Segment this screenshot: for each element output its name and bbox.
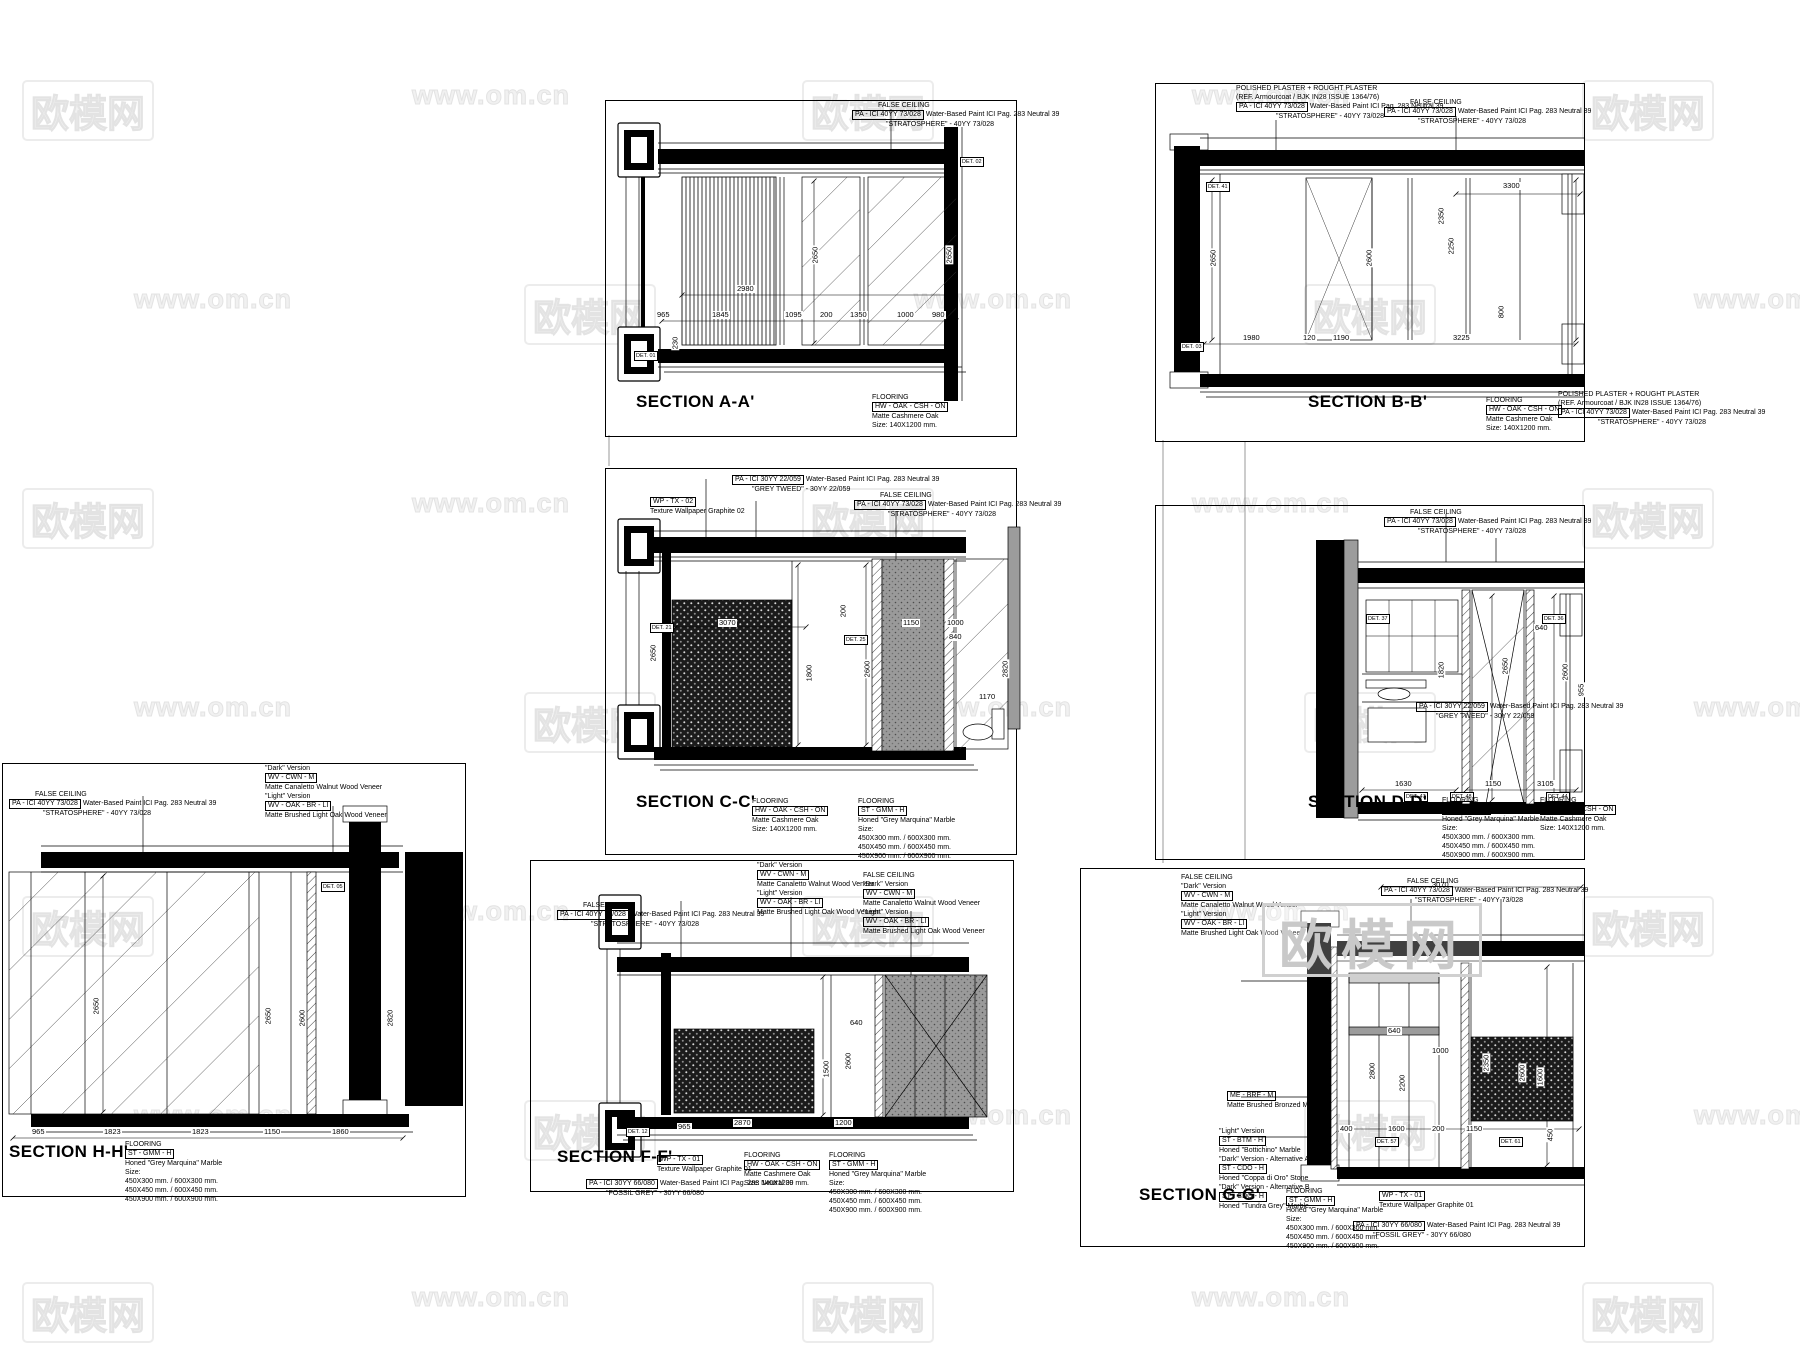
dimension-label: 1600: [1536, 1068, 1544, 1087]
dimension-label: 200: [819, 311, 834, 319]
section-title-H: SECTION H-H': [9, 1142, 128, 1162]
dimension-label: 2650: [649, 644, 657, 663]
spec-note: PA - ICI 30YY 66/080 Water-Based Paint I…: [586, 1179, 793, 1198]
spec-note-line: WV - CWN - M: [265, 773, 387, 783]
spec-note-line: FALSE CEILING: [1181, 873, 1303, 882]
spec-note-line: 450X900 mm. / 600X900 mm.: [125, 1195, 222, 1204]
drawing-sheet: 欧模网www.om.cn欧模网www.om.cn欧模网www.om.cn欧模网w…: [0, 0, 1800, 1347]
dimension-label: 1200: [834, 1119, 853, 1127]
spec-note-line: FLOORING: [744, 1151, 820, 1160]
section-drawing-H: [3, 764, 465, 1196]
spec-note-line: Matte Brushed Light Oak Wood Veneer: [757, 908, 879, 917]
dimension-label: 1500: [822, 1060, 830, 1079]
dimension-label: 1630: [1394, 780, 1413, 788]
spec-note: FALSE CEILINGPA - ICI 40YY 73/028 Water-…: [557, 901, 764, 929]
spec-note: FALSE CEILINGPA - ICI 40YY 73/028 Water-…: [1384, 98, 1591, 126]
spec-note-line: WV - OAK - BR - LI: [863, 917, 985, 927]
material-code: PA - ICI 40YY 73/028: [557, 910, 629, 920]
dimension-label: 2650: [264, 1007, 272, 1026]
dimension-label: DET. 02: [960, 157, 984, 167]
spec-note-line: "STRATOSPHERE" - 40YY 73/028: [43, 809, 216, 818]
spec-note-line: Matte Brushed Bronzed Metal: [1227, 1101, 1320, 1110]
spec-note-line: FLOORING: [872, 393, 948, 402]
spec-note: FLOORINGHW - OAK - CSH - ONMatte Cashmer…: [1486, 396, 1562, 433]
dimension-label: 2650: [945, 246, 953, 265]
spec-note: WP - TX - 01Texture Wallpaper Graphite 0…: [1379, 1191, 1474, 1210]
material-code: PA - ICI 40YY 73/028: [852, 110, 924, 120]
material-code: HW - OAK - CSH - ON: [744, 1160, 820, 1170]
spec-note: FALSE CEILINGPA - ICI 40YY 73/028 Water-…: [852, 101, 1059, 129]
dimension-label: 965: [656, 311, 671, 319]
spec-note-line: FALSE CEILING: [863, 871, 985, 880]
dimension-label: DET. 57: [1375, 1137, 1399, 1147]
dimension-label: 2250: [1447, 237, 1455, 256]
spec-note-line: "Light" Version: [757, 889, 879, 898]
spec-note-line: PA - ICI 30YY 66/080 Water-Based Paint I…: [586, 1179, 793, 1189]
spec-note-line: Honed "Grey Marquina" Marble: [1286, 1206, 1383, 1215]
dimension-label: 2600: [1365, 249, 1373, 268]
spec-note-line: Matte Cashmere Oak: [1540, 815, 1616, 824]
material-code: HW - OAK - CSH - ON: [872, 402, 948, 412]
dimension-label: 2600: [1518, 1064, 1526, 1083]
dimension-label: 2800: [1368, 1062, 1376, 1081]
spec-note-line: 450X300 mm. / 600X300 mm.: [858, 834, 955, 843]
material-code: ME - BRE - M: [1227, 1091, 1276, 1101]
dimension-label: 2650: [92, 997, 100, 1016]
dimension-label: DET. 25: [844, 635, 868, 645]
spec-note-line: ST - BTM - H: [1219, 1136, 1310, 1146]
spec-note-line: 450X300 mm. / 600X300 mm.: [1442, 833, 1539, 842]
dimension-label: DET. 37: [1366, 614, 1390, 624]
spec-note-line: WP - TX - 01: [1379, 1191, 1474, 1201]
dimension-label: 1820: [1437, 661, 1445, 680]
spec-note-line: "GREY TWEED" - 30YY 22/059: [1436, 712, 1623, 721]
spec-note-line: WV - CWN - M: [1181, 891, 1303, 901]
spec-note-line: FLOORING: [1442, 796, 1539, 805]
spec-note-line: Matte Cashmere Oak: [872, 412, 948, 421]
dimension-label: DET. 03: [1180, 342, 1204, 352]
material-code: PA - ICI 40YY 73/028: [9, 799, 81, 809]
material-code: PA - ICI 30YY 66/080: [586, 1179, 658, 1189]
dimension-label: 1000: [896, 311, 915, 319]
section-title-B: SECTION B-B': [1308, 392, 1427, 412]
spec-note-line: "Dark" Version: [1181, 882, 1303, 891]
spec-note-line: HW - OAK - CSH - ON: [872, 402, 948, 412]
material-code: ST - CDO - H: [1219, 1164, 1267, 1174]
spec-note-line: "STRATOSPHERE" - 40YY 73/028: [886, 120, 1059, 129]
spec-note-line: Honed "Bottichino" Marble: [1219, 1146, 1310, 1155]
spec-note-line: Matte Cashmere Oak: [1486, 415, 1562, 424]
spec-note-line: Size:: [829, 1179, 926, 1188]
material-code: WV - OAK - BR - LI: [863, 917, 929, 927]
dimension-label: 800: [1497, 305, 1505, 320]
dimension-label: DET. 61: [1499, 1137, 1523, 1147]
dimension-label: 3105: [1536, 780, 1555, 788]
spec-note-line: FALSE CEILING: [1407, 877, 1588, 886]
spec-note-line: 450X900 mm. / 600X900 mm.: [829, 1206, 926, 1215]
section-panel-F: 6401500260028701200965DET. 12FALSE CEILI…: [530, 860, 1014, 1192]
section-title-A: SECTION A-A': [636, 392, 755, 412]
material-code: WV - CWN - M: [863, 889, 915, 899]
dimension-label: 2820: [1001, 660, 1009, 679]
material-code: PA - ICI 40YY 73/028: [1384, 107, 1456, 117]
material-code: ST - GMM - H: [1286, 1196, 1335, 1206]
spec-note-line: PA - ICI 30YY 22/059 Water-Based Paint I…: [1416, 702, 1623, 712]
dimension-label: 120: [1302, 334, 1317, 342]
spec-note: FALSE CEILING"Dark" VersionWV - CWN - MM…: [863, 871, 985, 936]
dimension-label: 1823: [103, 1128, 122, 1136]
spec-note-line: "Light" Version: [1219, 1127, 1310, 1136]
dimension-label: 840: [948, 633, 963, 641]
spec-note-line: POLISHED PLASTER + ROUGHT PLASTER: [1236, 84, 1443, 93]
dimension-label: 2350: [1437, 207, 1445, 226]
material-code: PA - ICI 40YY 73/028: [1381, 886, 1453, 896]
spec-note-line: Honed "Grey Marquina" Marble: [858, 816, 955, 825]
dimension-label: 3070: [718, 619, 737, 627]
spec-note-line: Matte Brushed Light Oak Wood Veneer: [863, 927, 985, 936]
section-title-G: SECTION G-G': [1139, 1185, 1260, 1205]
spec-note-line: FALSE CEILING: [1410, 508, 1591, 517]
spec-note-line: ST - GMM - H: [858, 806, 955, 816]
dimension-label: 955: [1577, 683, 1585, 698]
spec-note-line: ME - BRE - M: [1227, 1091, 1320, 1101]
spec-note-line: ST - CDO - H: [1219, 1164, 1310, 1174]
dimension-label: 2600: [863, 660, 871, 679]
dimension-label: 640: [1534, 624, 1549, 632]
spec-note-line: "Dark" Version: [265, 764, 387, 773]
spec-note-line: 450X300 mm. / 600X300 mm.: [125, 1177, 222, 1186]
spec-note-line: Size:: [125, 1168, 222, 1177]
spec-note-line: FALSE CEILING: [1410, 98, 1591, 107]
spec-note-line: ST - GMM - H: [1442, 805, 1539, 815]
dimension-label: 1860: [331, 1128, 350, 1136]
dimension-label: 1600: [1387, 1125, 1406, 1133]
dimension-label: 200: [1431, 1125, 1446, 1133]
spec-note-line: WV - OAK - BR - LI: [757, 898, 879, 908]
spec-note-line: PA - ICI 40YY 73/028 Water-Based Paint I…: [1384, 107, 1591, 117]
dimension-label: DET. 21: [650, 623, 674, 633]
spec-note-line: "Dark" Version: [863, 880, 985, 889]
spec-note-line: 450X450 mm. / 600X450 mm.: [1442, 842, 1539, 851]
spec-note-line: HW - OAK - CSH - ON: [1486, 405, 1562, 415]
dimension-label: DET. 05: [321, 882, 345, 892]
spec-note-line: 450X450 mm. / 600X450 mm.: [125, 1186, 222, 1195]
material-code: ST - GMM - H: [1442, 805, 1491, 815]
spec-note-line: PA - ICI 40YY 73/028 Water-Based Paint I…: [854, 500, 1061, 510]
spec-note-line: ST - GMM - H: [829, 1160, 926, 1170]
dimension-label: 3225: [1452, 334, 1471, 342]
dimension-label: 2600: [1561, 663, 1569, 682]
spec-note-line: HW - OAK - CSH - ON: [1540, 805, 1616, 815]
dimension-label: 200: [839, 604, 847, 619]
spec-note: FLOORINGST - GMM - HHoned "Grey Marquina…: [1286, 1187, 1383, 1251]
spec-note-line: (REF. Armourcoat / BJK IN28 ISSUE 1364/7…: [1558, 399, 1765, 408]
spec-note-line: FLOORING: [752, 797, 828, 806]
spec-note-line: 450X900 mm. / 600X900 mm.: [1286, 1242, 1383, 1251]
dimension-label: 1170: [978, 693, 996, 701]
section-title-D: SECTION D-D': [1308, 792, 1427, 812]
spec-note-line: ST - GMM - H: [1286, 1196, 1383, 1206]
material-code: WV - OAK - BR - LI: [757, 898, 823, 908]
spec-note-line: Size: 140X1200 mm.: [1486, 424, 1562, 433]
dimension-label: 2600: [298, 1009, 306, 1028]
material-code: PA - ICI 40YY 73/028: [1558, 408, 1630, 418]
spec-note-line: "STRATOSPHERE" - 40YY 73/028: [888, 510, 1061, 519]
spec-note: FLOORINGST - GMM - HHoned "Grey Marquina…: [125, 1140, 222, 1204]
section-panel-B: 19801201190322526502600225080033002350DE…: [1155, 83, 1585, 442]
spec-note-line: Size: 140X1200 mm.: [752, 825, 828, 834]
section-panel-H: 96518231823115018602650265026002820DET. …: [2, 763, 466, 1197]
section-title-F: SECTION F-F': [557, 1147, 673, 1167]
dimension-label: 1980: [1242, 334, 1261, 342]
spec-note: "Dark" VersionWV - CWN - MMatte Canalett…: [757, 861, 879, 917]
material-code: PA - ICI 30YY 22/059: [1416, 702, 1488, 712]
spec-note: ME - BRE - MMatte Brushed Bronzed Metal: [1227, 1091, 1320, 1110]
spec-note-line: PA - ICI 40YY 73/028 Water-Based Paint I…: [852, 110, 1059, 120]
section-panel-D: 163011503105955182026502600640DET. 37DET…: [1155, 505, 1585, 860]
dimension-label: 230: [671, 336, 679, 351]
material-code: PA - ICI 30YY 22/059: [732, 475, 804, 485]
spec-note-line: PA - ICI 30YY 66/080 Water-Based Paint I…: [1353, 1221, 1560, 1231]
spec-note: FLOORINGHW - OAK - CSH - ONMatte Cashmer…: [872, 393, 948, 430]
spec-note-line: Honed "Grey Marquina" Marble: [1442, 815, 1539, 824]
material-code: WP - TX - 01: [1379, 1191, 1425, 1201]
dimension-label: 1190: [1332, 334, 1350, 342]
material-code: HW - OAK - CSH - ON: [1540, 805, 1616, 815]
material-code: PA - ICI 40YY 73/028: [854, 500, 926, 510]
spec-note-line: PA - ICI 40YY 73/028 Water-Based Paint I…: [9, 799, 216, 809]
spec-note: FLOORINGHW - OAK - CSH - ONMatte Cashmer…: [1540, 796, 1616, 833]
spec-note-line: FALSE CEILING: [878, 101, 1059, 110]
dimension-label: DET. 01: [634, 351, 658, 361]
dimension-label: 640: [849, 1019, 864, 1027]
dimension-label: 965: [31, 1128, 46, 1136]
dimension-label: 2980: [736, 285, 755, 293]
spec-note-line: Matte Canaletto Walnut Wood Veneer: [757, 880, 879, 889]
spec-note-line: Matte Cashmere Oak: [752, 816, 828, 825]
dimension-label: 1800: [805, 664, 813, 683]
dimension-label: 980: [931, 311, 946, 319]
spec-note-line: Texture Wallpaper Graphite 02: [650, 507, 745, 516]
spec-note-line: WV - CWN - M: [757, 870, 879, 880]
spec-note: PA - ICI 30YY 22/059 Water-Based Paint I…: [1416, 702, 1623, 721]
spec-note-line: Matte Canaletto Walnut Wood Veneer: [265, 783, 387, 792]
material-code: PA - ICI 30YY 66/080: [1353, 1221, 1425, 1231]
spec-note-line: "STRATOSPHERE" - 40YY 73/028: [1418, 117, 1591, 126]
spec-note-line: FALSE CEILING: [880, 491, 1061, 500]
spec-note-line: "Light" Version: [265, 792, 387, 801]
dimension-label: 1150: [902, 619, 920, 627]
material-code: HW - OAK - CSH - ON: [1486, 405, 1562, 415]
spec-note-line: FLOORING: [1486, 396, 1562, 405]
spec-note-line: FLOORING: [125, 1140, 222, 1149]
material-code: WV - OAK - BR - LI: [1181, 919, 1247, 929]
spec-note-line: Honed "Grey Marquina" Marble: [829, 1170, 926, 1179]
dimension-label: 640: [1387, 1027, 1402, 1035]
spec-note-line: Size:: [1442, 824, 1539, 833]
spec-note: WP - TX - 02Texture Wallpaper Graphite 0…: [650, 497, 745, 516]
spec-note-line: WV - CWN - M: [863, 889, 985, 899]
material-code: WV - CWN - M: [265, 773, 317, 783]
dimension-label: 450: [1546, 1128, 1554, 1143]
spec-note-line: "STRATOSPHERE" - 40YY 73/028: [591, 920, 764, 929]
spec-note-line: FALSE CEILING: [35, 790, 216, 799]
spec-note-line: PA - ICI 40YY 73/028 Water-Based Paint I…: [1558, 408, 1765, 418]
section-panel-A: 2980965184510952001350100098026502650230…: [605, 100, 1017, 437]
material-code: PA - ICI 40YY 73/028: [1384, 517, 1456, 527]
spec-note-line: Matte Cashmere Oak: [744, 1170, 820, 1179]
big-watermark: 欧模网: [1262, 903, 1482, 977]
spec-note: "Dark" VersionWV - CWN - MMatte Canalett…: [265, 764, 387, 820]
spec-note-line: FLOORING: [1540, 796, 1616, 805]
spec-note: FLOORINGST - GMM - HHoned "Grey Marquina…: [1442, 796, 1539, 860]
material-code: ST - GMM - H: [858, 806, 907, 816]
spec-note-line: FLOORING: [1286, 1187, 1383, 1196]
spec-note-line: "Dark" Version - Alternative A: [1219, 1155, 1310, 1164]
spec-note-line: HW - OAK - CSH - ON: [744, 1160, 820, 1170]
dimension-label: 1845: [711, 311, 730, 319]
dimension-label: 1000: [946, 619, 965, 627]
dimension-label: 2650: [1209, 249, 1217, 268]
material-code: ST - BTM - H: [1219, 1136, 1266, 1146]
spec-note-line: Matte Brushed Light Oak Wood Veneer: [265, 811, 387, 820]
spec-note: FLOORINGHW - OAK - CSH - ONMatte Cashmer…: [752, 797, 828, 834]
dimension-label: 1150: [1484, 780, 1502, 788]
spec-note-line: PA - ICI 30YY 22/059 Water-Based Paint I…: [732, 475, 939, 485]
material-code: WV - CWN - M: [757, 870, 809, 880]
spec-note-line: "FOSSIL GREY" - 30YY 66/080: [1373, 1231, 1560, 1240]
spec-note-line: Texture Wallpaper Graphite 01: [1379, 1201, 1474, 1210]
dimension-label: 3300: [1502, 182, 1521, 190]
dimension-label: 400: [1339, 1125, 1354, 1133]
spec-note-line: "STRATOSPHERE" - 40YY 73/028: [1418, 527, 1591, 536]
spec-note-line: "Dark" Version: [757, 861, 879, 870]
spec-note: FLOORINGST - GMM - HHoned "Grey Marquina…: [858, 797, 955, 861]
spec-note-line: FLOORING: [829, 1151, 926, 1160]
spec-note-line: Size: 140X1200 mm.: [872, 421, 948, 430]
spec-note-line: 450X300 mm. / 600X300 mm.: [829, 1188, 926, 1197]
spec-note: FALSE CEILINGPA - ICI 40YY 73/028 Water-…: [1384, 508, 1591, 536]
spec-note-line: "STRATOSPHERE" - 40YY 73/028: [1598, 418, 1765, 427]
spec-note: FALSE CEILINGPA - ICI 40YY 73/028 Water-…: [854, 491, 1061, 519]
dimension-label: 1150: [263, 1128, 281, 1136]
spec-note-line: HW - OAK - CSH - ON: [752, 806, 828, 816]
spec-note-line: Honed "Grey Marquina" Marble: [125, 1159, 222, 1168]
spec-note-line: PA - ICI 40YY 73/028 Water-Based Paint I…: [1384, 517, 1591, 527]
dimension-label: 2600: [844, 1052, 852, 1071]
dimension-label: 2200: [1398, 1074, 1406, 1093]
dimension-label: 1350: [849, 311, 868, 319]
material-code: WP - TX - 02: [650, 497, 696, 507]
spec-note: POLISHED PLASTER + ROUGHT PLASTER(REF. A…: [1558, 390, 1765, 427]
spec-note-line: Honed "Coppa di Oro" Stone: [1219, 1174, 1310, 1183]
dimension-label: 1095: [784, 311, 803, 319]
section-drawing-A: [606, 101, 1016, 436]
material-code: ST - GMM - H: [829, 1160, 878, 1170]
dimension-label: 2650: [1501, 657, 1509, 676]
spec-note-line: "Light" Version: [863, 908, 985, 917]
spec-note-line: Size:: [858, 825, 955, 834]
dimension-label: 2350: [1482, 1054, 1490, 1073]
spec-note-line: ST - GMM - H: [125, 1149, 222, 1159]
spec-note: FLOORINGST - GMM - HHoned "Grey Marquina…: [829, 1151, 926, 1215]
spec-note: FALSE CEILINGPA - ICI 40YY 73/028 Water-…: [9, 790, 216, 818]
spec-note-line: PA - ICI 40YY 73/028 Water-Based Paint I…: [557, 910, 764, 920]
spec-note-line: PA - ICI 40YY 73/028 Water-Based Paint I…: [1381, 886, 1588, 896]
dimension-label: DET. 12: [626, 1127, 650, 1137]
spec-note-line: WP - TX - 02: [650, 497, 745, 507]
spec-note-line: 450X900 mm. / 600X900 mm.: [1442, 851, 1539, 860]
spec-note-line: FLOORING: [858, 797, 955, 806]
spec-note-line: WV - OAK - BR - LI: [265, 801, 387, 811]
dimension-label: 1000: [1431, 1047, 1450, 1055]
section-title-C: SECTION C-C': [636, 792, 755, 812]
spec-note-line: Size: 140X1200 mm.: [1540, 824, 1616, 833]
spec-note: PA - ICI 30YY 66/080 Water-Based Paint I…: [1353, 1221, 1560, 1240]
material-code: HW - OAK - CSH - ON: [752, 806, 828, 816]
dimension-label: 2870: [733, 1119, 752, 1127]
dimension-label: 1823: [191, 1128, 210, 1136]
material-code: PA - ICI 40YY 73/028: [1236, 102, 1308, 112]
spec-note-line: "FOSSIL GREY" - 30YY 66/080: [606, 1189, 793, 1198]
dimension-label: 1150: [1465, 1125, 1483, 1133]
spec-note-line: 450X450 mm. / 600X450 mm.: [858, 843, 955, 852]
dimension-label: 2820: [386, 1009, 394, 1028]
spec-note-line: FALSE CEILING: [583, 901, 764, 910]
spec-note-line: 450X450 mm. / 600X450 mm.: [829, 1197, 926, 1206]
dimension-label: 2650: [811, 246, 819, 265]
dimension-label: DET. 41: [1206, 182, 1230, 192]
spec-note-line: Matte Canaletto Walnut Wood Veneer: [863, 899, 985, 908]
material-code: ST - GMM - H: [125, 1149, 174, 1159]
spec-note-line: POLISHED PLASTER + ROUGHT PLASTER: [1558, 390, 1765, 399]
material-code: WV - CWN - M: [1181, 891, 1233, 901]
section-panel-C: 30702001000840115018002600282011702650DE…: [605, 468, 1017, 855]
dimension-label: DET. 36: [1542, 614, 1566, 624]
material-code: WV - OAK - BR - LI: [265, 801, 331, 811]
dimension-label: 965: [677, 1123, 692, 1131]
